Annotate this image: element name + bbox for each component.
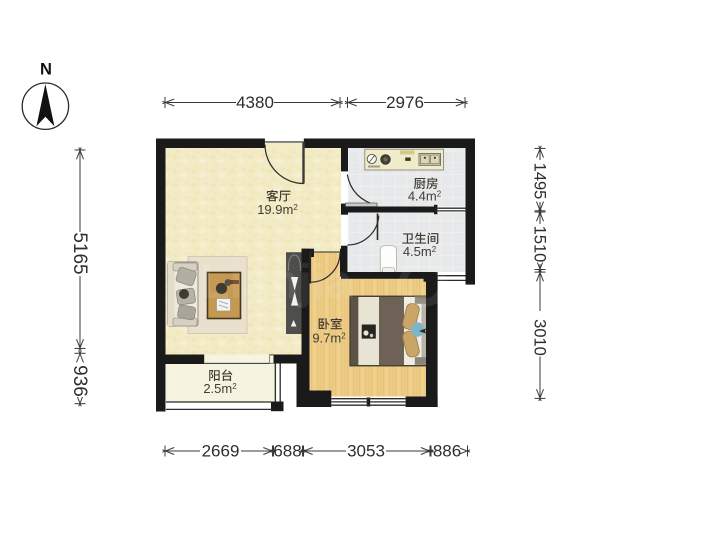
svg-text:886: 886 [433,442,461,461]
svg-text:2.5m2: 2.5m2 [203,381,237,396]
svg-text:936: 936 [69,365,90,397]
svg-text:N: N [40,61,52,79]
svg-text:4.4m2: 4.4m2 [408,189,442,204]
svg-text:4.5m2: 4.5m2 [403,244,437,259]
svg-text:19.9m2: 19.9m2 [257,202,298,217]
svg-text:3010: 3010 [531,319,549,356]
svg-text:1510: 1510 [531,226,549,263]
svg-text:2976: 2976 [386,93,424,112]
svg-text:1495: 1495 [531,163,549,200]
svg-text:3053: 3053 [347,442,385,461]
svg-text:4380: 4380 [236,93,274,112]
svg-text:688: 688 [273,442,301,461]
svg-text:Lianjia: Lianjia [200,256,352,309]
svg-text:9.7m2: 9.7m2 [312,331,346,346]
svg-text:5165: 5165 [69,232,90,274]
svg-text:com: com [434,291,467,308]
svg-text:2669: 2669 [202,442,240,461]
